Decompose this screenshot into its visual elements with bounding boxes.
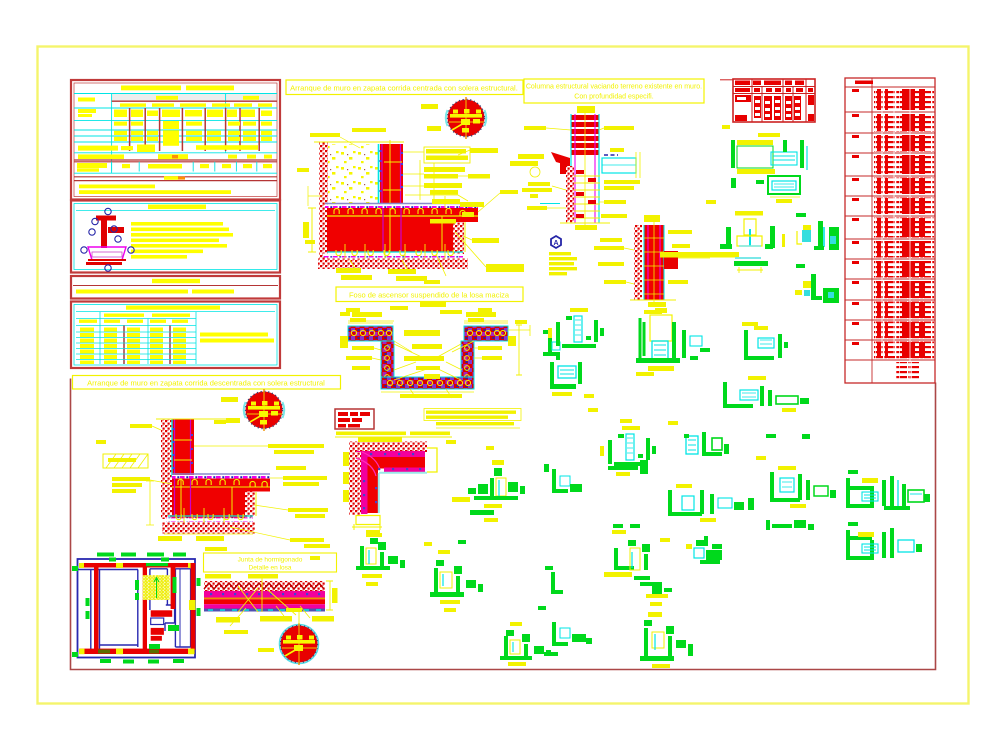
svg-text:Columna estructural vaciando t: Columna estructural vaciando terreno exi… bbox=[526, 84, 702, 91]
svg-text:Arranque de muro en zapata cor: Arranque de muro en zapata corrida desce… bbox=[87, 379, 325, 388]
svg-text:Detalle en losa: Detalle en losa bbox=[249, 565, 292, 572]
svg-text:Junta de hormigonado: Junta de hormigonado bbox=[238, 557, 303, 564]
svg-text:A: A bbox=[553, 240, 558, 247]
svg-text:Con profundidad especifi.: Con profundidad especifi. bbox=[574, 94, 653, 101]
svg-text:Foso de ascensor suspendido de: Foso de ascensor suspendido de la losa m… bbox=[349, 291, 510, 300]
svg-text:Arranque de muro en zapata cor: Arranque de muro en zapata corrida centr… bbox=[290, 84, 518, 93]
